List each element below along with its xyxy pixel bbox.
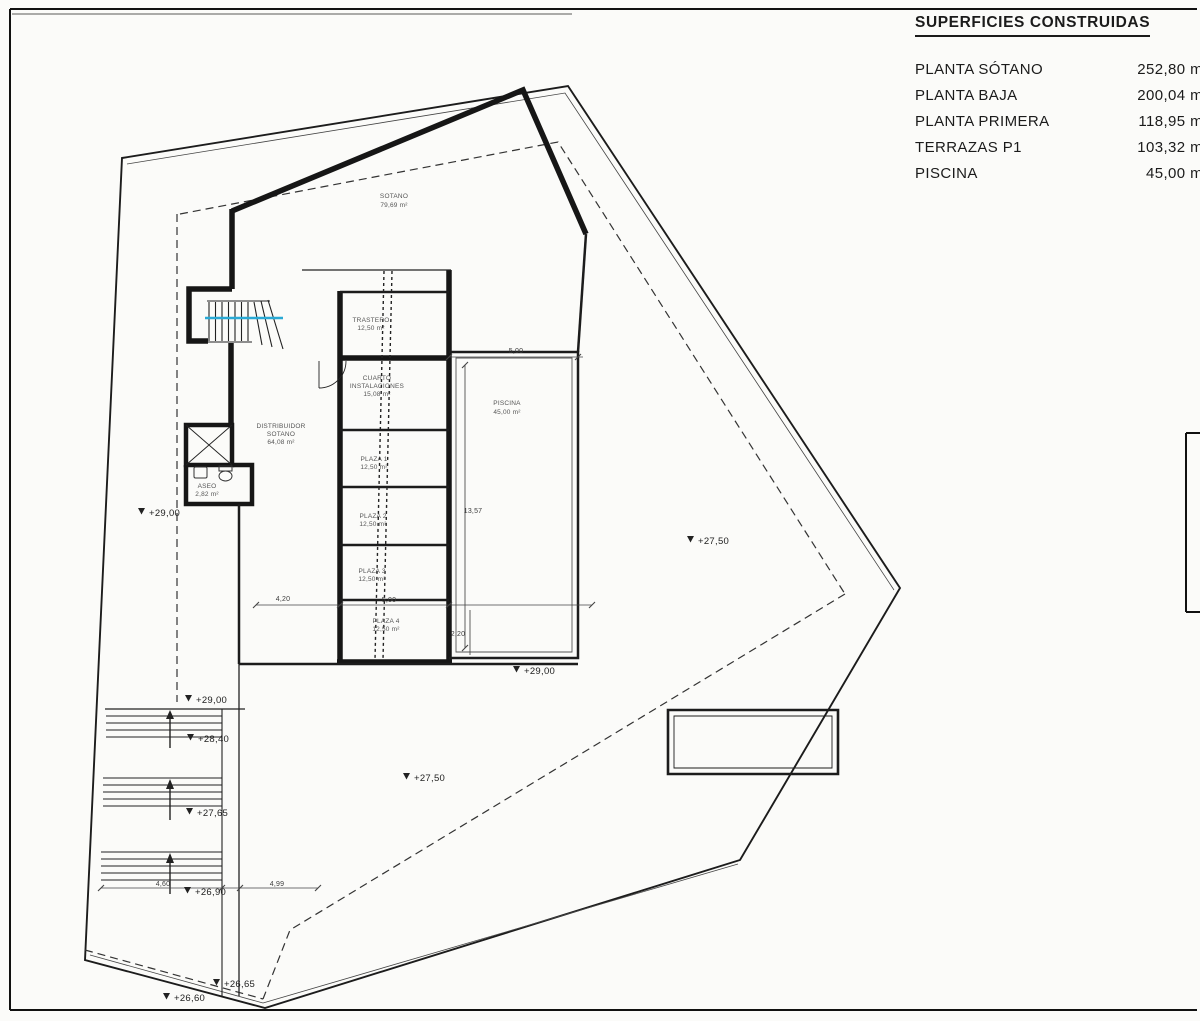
room-name: TRASTERO — [353, 317, 390, 324]
room-name-2: INSTALACIONES — [350, 383, 405, 390]
level-marker-right: +27,50 — [687, 536, 729, 547]
room-name: PISCINA — [493, 400, 521, 407]
level-markers: +29,00 +27,50 +29,00 +29,00 +28,40 +27,5… — [138, 508, 729, 1004]
level-marker-stair-top: +29,00 — [185, 695, 227, 706]
room-labels: SOTANO 79,69 m² TRASTERO 12,50 m² CUARTO… — [195, 193, 521, 633]
stair-treads — [207, 300, 283, 349]
areas-legend: SUPERFICIES CONSTRUIDAS PLANTA SÓTANO 25… — [915, 14, 1200, 191]
legend-row: TERRAZAS P1 103,32 m — [915, 139, 1200, 165]
down-triangle-icon — [163, 993, 170, 1000]
parcel — [85, 86, 900, 1008]
room-label-plaza-1: PLAZA 1 12,50 m² — [360, 456, 388, 471]
room-label-plaza-2: PLAZA 2 12,50 m² — [359, 513, 387, 528]
down-triangle-icon — [186, 808, 193, 815]
room-label-distribuidor: DISTRIBUIDOR SOTANO 64,08 m² — [257, 423, 306, 446]
room-label-plaza-3: PLAZA 3 12,50 m² — [358, 568, 386, 583]
level-marker-bottom-b: +26,60 — [163, 993, 205, 1004]
room-label-cuarto-instalaciones: CUARTO INSTALACIONES 15,08 m² — [350, 375, 405, 398]
level-value: +29,00 — [196, 695, 227, 706]
dim-corner: 2,20 — [451, 631, 465, 638]
room-label-piscina: PISCINA 45,00 m² — [493, 400, 521, 416]
sink-fixture — [194, 467, 207, 478]
terrace-stair-flight-b — [103, 778, 222, 806]
room-name: SOTANO — [380, 193, 408, 200]
aseo-fixtures — [194, 466, 232, 481]
level-marker-stair-low: +27,65 — [186, 808, 228, 819]
level-marker-left: +29,00 — [138, 508, 180, 519]
down-triangle-icon — [403, 773, 410, 780]
level-marker-pool: +29,00 — [513, 666, 555, 677]
level-value: +28,40 — [198, 734, 229, 745]
level-value: +27,50 — [698, 536, 729, 547]
room-area: 12,50 m² — [360, 464, 388, 471]
legend-label: PLANTA BAJA — [915, 87, 1018, 104]
down-triangle-icon — [138, 508, 145, 515]
room-area: 12,50 m² — [358, 576, 386, 583]
down-triangle-icon — [184, 887, 191, 894]
room-label-aseo: ASEO 2,82 m² — [195, 483, 219, 498]
room-name-2: SOTANO — [267, 431, 295, 438]
building-right-edge — [578, 234, 586, 352]
room-area: 12,50 m² — [359, 521, 387, 528]
level-value: +27,65 — [197, 808, 228, 819]
level-value: +27,50 — [414, 773, 445, 784]
room-name: PLAZA 2 — [359, 513, 386, 520]
legend-value: 200,04 m — [1137, 87, 1200, 104]
room-name: PLAZA 4 — [372, 618, 399, 625]
legend-value: 45,00 m — [1146, 165, 1200, 182]
interior-stair — [205, 300, 283, 349]
legend-row: PLANTA PRIMERA 118,95 m — [915, 113, 1200, 139]
legend-row: PLANTA BAJA 200,04 m — [915, 87, 1200, 113]
dim-ticks — [98, 354, 595, 891]
dim-terrace-width: 4,99 — [270, 881, 284, 888]
room-name: ASEO — [198, 483, 217, 490]
legend-label: TERRAZAS P1 — [915, 139, 1022, 156]
room-label-trastero: TRASTERO 12,50 m² — [353, 317, 390, 332]
legend-title: SUPERFICIES CONSTRUIDAS — [915, 14, 1150, 37]
room-name: PLAZA 3 — [358, 568, 385, 575]
porch — [668, 710, 838, 774]
toilet-fixture — [219, 471, 232, 481]
room-name: CUARTO — [363, 375, 391, 382]
walls-medium — [239, 234, 586, 664]
arrow-head — [166, 779, 174, 789]
down-triangle-icon — [213, 979, 220, 986]
level-value: +29,00 — [524, 666, 555, 677]
room-area: 45,00 m² — [493, 409, 521, 416]
dim-stairs-width: 4,60 — [156, 881, 170, 888]
down-triangle-icon — [687, 536, 694, 543]
dimension-lines — [98, 354, 595, 891]
dim-pool-side: 13,57 — [464, 508, 483, 515]
arrow-head — [166, 853, 174, 863]
legend-value: 252,80 m — [1137, 61, 1200, 78]
room-area: 12,50 m² — [372, 626, 400, 633]
dim-pool-top: 5,00 — [509, 348, 523, 355]
legend-label: PISCINA — [915, 165, 978, 182]
room-area: 12,50 m² — [357, 325, 385, 332]
shaft-x-diagonals — [186, 425, 232, 465]
level-value: +26,60 — [174, 993, 205, 1004]
dim-garage-bottom-left: 4,20 — [276, 596, 290, 603]
legend-value: 103,32 m — [1137, 139, 1200, 156]
legend-label: PLANTA SÓTANO — [915, 61, 1043, 78]
stair-enclosure-wall — [189, 289, 232, 341]
room-name: PLAZA 1 — [360, 456, 387, 463]
legend-rows: PLANTA SÓTANO 252,80 m PLANTA BAJA 200,0… — [915, 61, 1200, 191]
level-value: +26,65 — [224, 979, 255, 990]
legend-value: 118,95 m — [1138, 113, 1200, 130]
level-marker-stair-bottom: +26,90 — [184, 887, 226, 898]
level-value: +29,00 — [149, 508, 180, 519]
terrace-stair-flight-c — [101, 852, 222, 880]
room-label-plaza-4: PLAZA 4 12,50 m² — [372, 618, 400, 633]
parcel-boundary — [85, 86, 900, 1008]
titleblock-fragment — [1186, 433, 1200, 612]
room-area: 15,08 m² — [363, 391, 391, 398]
level-marker-stair-mid: +28,40 — [187, 734, 229, 745]
room-name: DISTRIBUIDOR — [257, 423, 306, 430]
legend-row: PLANTA SÓTANO 252,80 m — [915, 61, 1200, 87]
room-area: 2,82 m² — [195, 491, 219, 498]
legend-label: PLANTA PRIMERA — [915, 113, 1050, 130]
room-area: 79,69 m² — [380, 202, 408, 209]
room-area: 64,08 m² — [267, 439, 295, 446]
legend-row: PISCINA 45,00 m — [915, 165, 1200, 191]
down-triangle-icon — [513, 666, 520, 673]
room-label-sotano: SOTANO 79,69 m² — [380, 193, 408, 209]
arrow-head — [166, 710, 174, 719]
porch-inner-line — [674, 716, 832, 768]
level-marker-terrace: +27,50 — [403, 773, 445, 784]
down-triangle-icon — [185, 695, 192, 702]
level-marker-bottom-a: +26,65 — [213, 979, 255, 990]
porch-outline — [668, 710, 838, 774]
dim-garage-bottom: 5,00 — [382, 597, 396, 604]
level-value: +26,90 — [195, 887, 226, 898]
pool-outline — [449, 352, 578, 658]
